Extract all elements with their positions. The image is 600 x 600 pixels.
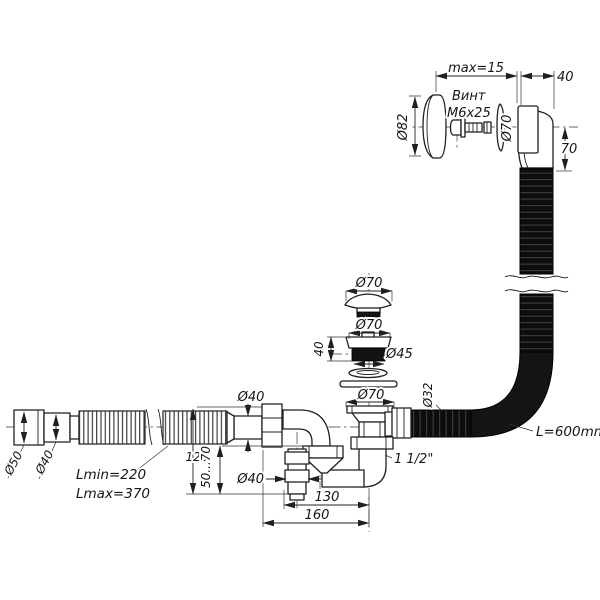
corrugation-run-1: [79, 411, 145, 444]
siphon-inlet-elbow: [283, 410, 330, 446]
drain-body-height-label: 40: [312, 341, 326, 357]
cap-dia-label: Ø70: [355, 276, 383, 291]
outlet-pipe: [14, 409, 234, 445]
outlet-cuff-50: [14, 410, 44, 445]
screw-name-label: Винт: [452, 89, 486, 104]
overflow-gasket-dia-label: Ø70: [500, 115, 515, 143]
outlet-cuff-40: [44, 413, 70, 442]
cuff-dia-label: Ø50: [1, 449, 26, 479]
len-min-label: Lmin=220: [76, 467, 146, 483]
drain-cap: [345, 294, 391, 317]
siphon-dip-tube: [285, 449, 309, 500]
siphon-inlet-nut: [234, 404, 282, 447]
thread-dia-label: Ø45: [385, 347, 413, 362]
drawing-svg: max=15 40 Винт М6х25 Ø82 Ø70 70 Ø32 L=60…: [0, 0, 600, 600]
outlet-pipe-dia-label: Ø40: [32, 448, 57, 478]
corrugation-run-2: [163, 411, 227, 444]
drop-height-label: 70: [561, 142, 578, 157]
inlet-dia-label: Ø40: [237, 390, 265, 405]
overflow-cover-plate: [423, 95, 446, 158]
offset-label: 130: [315, 490, 340, 505]
len-max-label: Lmax=370: [76, 486, 150, 502]
overflow-hose-dia-label: Ø32: [421, 383, 435, 409]
flange-dia-label: Ø70: [355, 318, 383, 333]
gap-max-label: max=15: [448, 61, 504, 76]
drain-gasket-wave: [349, 369, 387, 378]
screw-spec-label: М6х25: [447, 106, 491, 121]
adjust-range-label: 50...70: [199, 446, 213, 488]
overflow-elbow-body: [518, 106, 553, 168]
technical-drawing: max=15 40 Винт М6х25 Ø82 Ø70 70 Ø32 L=60…: [0, 0, 600, 600]
seal-dia-label: Ø70: [357, 388, 385, 403]
plate-dia-label: Ø82: [396, 114, 411, 142]
connection-size-label: 1 1/2": [394, 452, 433, 467]
drain-gasket-flat: [340, 381, 397, 387]
body-width-label: 40: [557, 70, 574, 85]
drain-tailpiece: [347, 406, 411, 449]
drain-body: [346, 332, 391, 361]
hose-length-label: L=600mm: [536, 424, 600, 440]
tube-dia-label: Ø40: [236, 472, 264, 487]
length-label: 160: [305, 508, 330, 523]
pipe-break-mark: [146, 409, 164, 445]
